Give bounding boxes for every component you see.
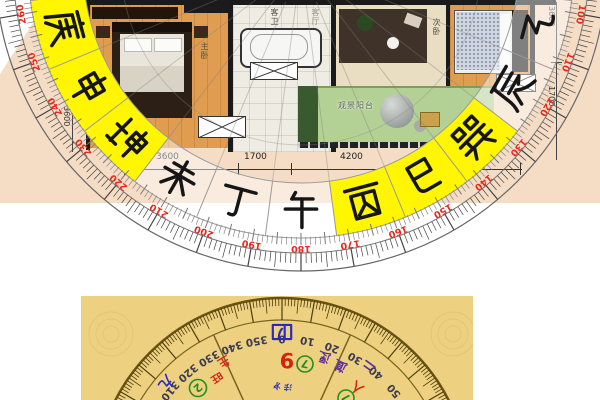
plant — [357, 15, 373, 31]
degree-190: 190 — [241, 237, 263, 251]
appliance-counter — [184, 0, 230, 13]
char-旺 — [211, 372, 223, 383]
dimension-label-right: 1700 — [547, 86, 556, 106]
landscape-rock — [380, 94, 414, 128]
dimension-label-left: 3600 — [62, 106, 71, 126]
char-法 — [284, 384, 291, 391]
dimension-label: 3600 — [156, 152, 179, 162]
degree-150: 150 — [431, 201, 454, 221]
door-symbol — [250, 62, 298, 80]
dimension-label: 4200 — [340, 152, 363, 162]
degree-160: 160 — [386, 223, 409, 240]
room-label-balcony: 观景阳台 — [338, 100, 374, 111]
luopan-image: 300310320330340350010203040509727 — [81, 296, 473, 400]
table-plate — [387, 37, 399, 49]
degree-180: 180 — [291, 243, 311, 254]
degree-170: 170 — [339, 237, 361, 251]
bathtub-basin — [250, 34, 308, 60]
star-number: 9 — [279, 348, 294, 372]
planter — [298, 86, 318, 142]
luopan-compass: 300310320330340350010203040509727 — [81, 296, 473, 400]
bed2-blanket — [456, 12, 500, 70]
door-symbol — [496, 74, 536, 92]
bed2-headboard — [512, 10, 528, 72]
door-symbol — [198, 116, 246, 138]
bed-headboard — [112, 22, 192, 32]
dimension-tick — [124, 163, 125, 175]
room-label-master-bedroom: 主卧 — [200, 42, 208, 60]
dimension-line-left — [72, 104, 73, 152]
luopan-degree-30: 30 — [346, 349, 365, 367]
luopan-degree-330: 330 — [196, 347, 221, 368]
dimension-tick — [551, 62, 562, 63]
bed-pillow — [154, 38, 182, 52]
char-水 — [274, 383, 280, 390]
floorplan-image: 主卧 客卫 客厅 次卧 观景阳台 — [0, 0, 600, 203]
dimension-line-right — [556, 2, 557, 160]
luopan-degree-340: 340 — [220, 338, 245, 357]
bed2-pillow — [500, 14, 510, 68]
bed-pillow — [124, 38, 152, 52]
dimension-label: 1700 — [244, 152, 267, 162]
dimension-tick — [425, 163, 426, 175]
dimension-tick — [520, 163, 521, 175]
bed-blanket — [120, 66, 184, 92]
dimension-line — [126, 169, 522, 170]
room-label-guest-bathroom: 客卫 — [270, 8, 278, 26]
luopan-degree-40: 40 — [367, 363, 386, 382]
degree-210: 210 — [148, 201, 171, 221]
room-label-second-bedroom: 次卧 — [432, 18, 440, 36]
wardrobe — [92, 7, 178, 19]
dimension-tick — [238, 163, 239, 175]
dimension-label-right-top: 3600 — [547, 6, 556, 26]
nightstand — [96, 26, 110, 38]
luopan-degree-350: 350 — [245, 333, 269, 349]
room-label-living-room: 客厅 — [311, 8, 319, 26]
degree-200: 200 — [192, 223, 215, 240]
tea-table — [420, 112, 440, 127]
nightstand — [194, 26, 208, 38]
luopan-degree-10: 10 — [299, 334, 315, 348]
circled-number-text: 7 — [300, 356, 310, 370]
luopan-degree-50: 50 — [385, 381, 404, 400]
dimension-tick — [291, 163, 292, 175]
screenshot-root: 主卧 客卫 客厅 次卧 观景阳台 — [0, 0, 600, 400]
char-道 — [332, 359, 347, 374]
balcony-wall — [298, 142, 494, 148]
